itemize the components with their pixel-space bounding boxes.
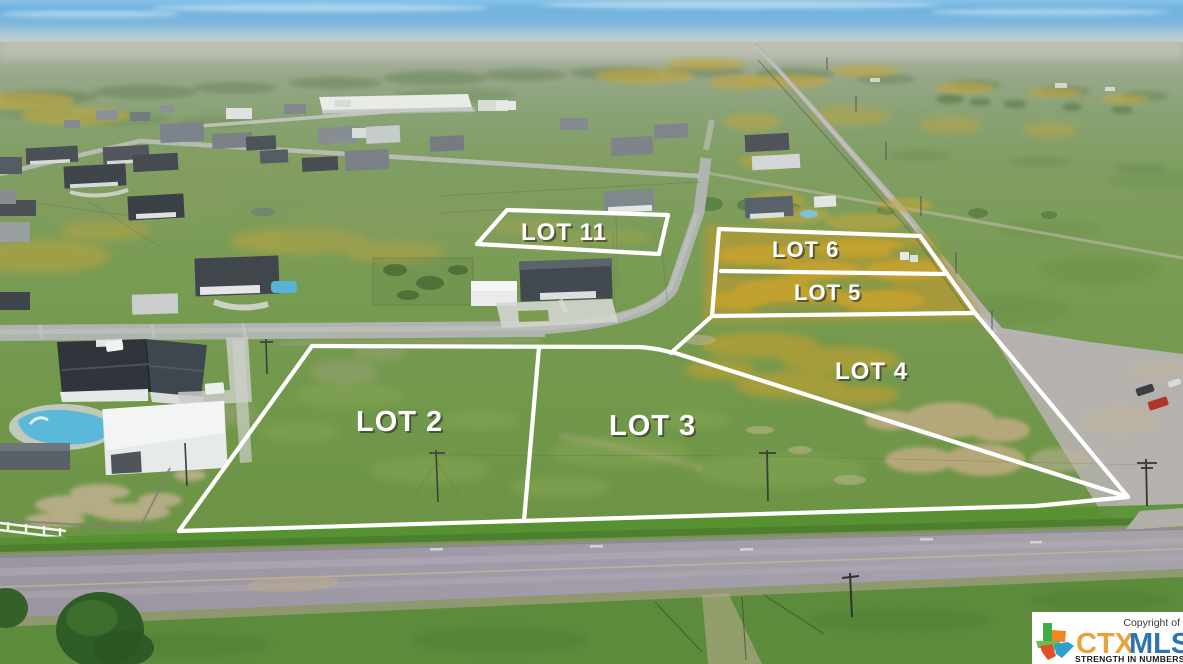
svg-text:STRENGTH IN NUMBERS: STRENGTH IN NUMBERS (1075, 654, 1183, 664)
svg-text:LOT 6: LOT 6 (772, 237, 839, 262)
svg-text:LOT 3: LOT 3 (609, 410, 696, 442)
svg-text:LOT 2: LOT 2 (356, 406, 443, 438)
svg-text:LOT 11: LOT 11 (521, 219, 607, 246)
svg-text:LOT 5: LOT 5 (794, 280, 861, 305)
svg-text:LOT 4: LOT 4 (835, 358, 908, 385)
